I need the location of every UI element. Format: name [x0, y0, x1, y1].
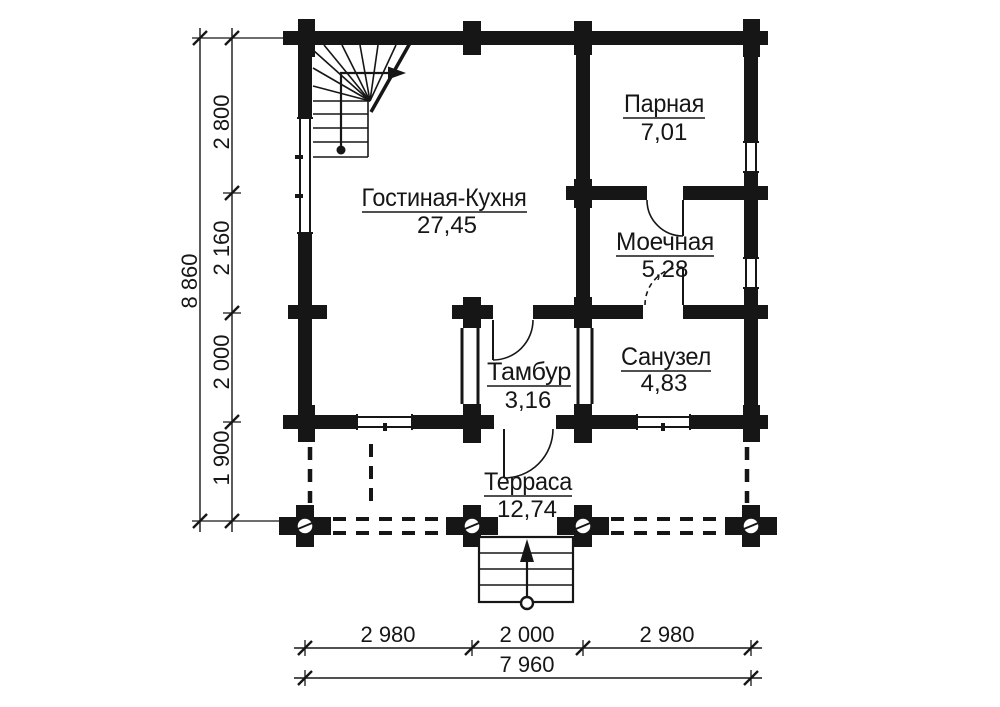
door-living-to-vestibule [493, 320, 533, 360]
wall-divider-vertical [576, 45, 590, 305]
staircase [313, 36, 414, 157]
label-vestibule-area: 3,16 [505, 387, 552, 414]
label-sauna-area: 7,01 [641, 119, 688, 146]
wall-top [283, 31, 768, 45]
cross-top-right [743, 19, 760, 57]
window-washing [743, 258, 759, 288]
pile-post-1 [279, 505, 331, 547]
cross-divider-193b [574, 179, 592, 208]
dim-bottom-total: 7 960 [499, 652, 554, 677]
cross-top-2 [574, 21, 592, 55]
interior-log-walls [288, 45, 768, 319]
cross-bottom-right [743, 405, 760, 442]
label-living-area: 27,45 [417, 212, 477, 239]
window-left-wall [295, 118, 313, 233]
cross-bottom-1 [463, 404, 481, 443]
window-living-bottom [357, 414, 412, 431]
dim-left-seg-0: 2 800 [209, 94, 234, 149]
wall-sauna-washing-a [590, 186, 647, 200]
cross-bottom-2 [574, 404, 592, 443]
wall-bottom-c [556, 415, 637, 429]
label-washing-area: 5,28 [642, 256, 689, 283]
dim-left-seg-1: 2 160 [209, 220, 234, 275]
dim-left-seg-3: 1 900 [209, 430, 234, 485]
dim-left-total: 8 860 [177, 253, 202, 308]
dim-bottom-seg-0: 2 980 [360, 622, 415, 647]
wall-bottom-a [283, 415, 357, 429]
floor-plan-drawing: Гостиная-Кухня 27,45 Парная 7,01 Моечная… [0, 0, 1000, 707]
dim-bottom-seg-2: 2 980 [639, 622, 694, 647]
cross-top-left [298, 19, 315, 57]
label-bathroom-area: 4,83 [641, 370, 688, 397]
window-sauna [743, 142, 759, 172]
label-terrace-area: 12,74 [497, 496, 557, 523]
label-terrace-name: Терраса [484, 468, 572, 496]
label-bathroom-name: Санузел [621, 343, 711, 371]
cross-bottom-left [298, 405, 315, 442]
wall-main-stub-left [288, 305, 327, 319]
label-vestibule-name: Тамбур [487, 358, 571, 386]
wall-right-b [744, 172, 758, 258]
dim-left-seg-2: 2 000 [209, 334, 234, 389]
dim-bottom-seg-1: 2 000 [499, 622, 554, 647]
cross-right-193 [734, 186, 768, 200]
cross-main-583 [574, 297, 592, 328]
window-bathroom-bottom [637, 414, 690, 431]
cross-main-472 [463, 297, 481, 328]
label-washing-name: Моечная [616, 228, 714, 256]
entrance-steps [479, 537, 573, 609]
label-living-name: Гостиная-Кухня [362, 184, 527, 212]
wall-right-a [744, 45, 758, 142]
label-sauna-name: Парная [624, 90, 704, 118]
dimension-labels: 8 860 2 800 2 160 2 000 1 900 2 980 2 00… [177, 94, 695, 677]
wall-main-c [683, 305, 768, 319]
floor-plan-page: Гостиная-Кухня 27,45 Парная 7,01 Моечная… [0, 0, 1000, 707]
cross-top-1 [463, 21, 481, 55]
wall-left-lower [298, 233, 312, 415]
pile-post-4 [725, 505, 777, 547]
wall-bottom-b [412, 415, 494, 429]
